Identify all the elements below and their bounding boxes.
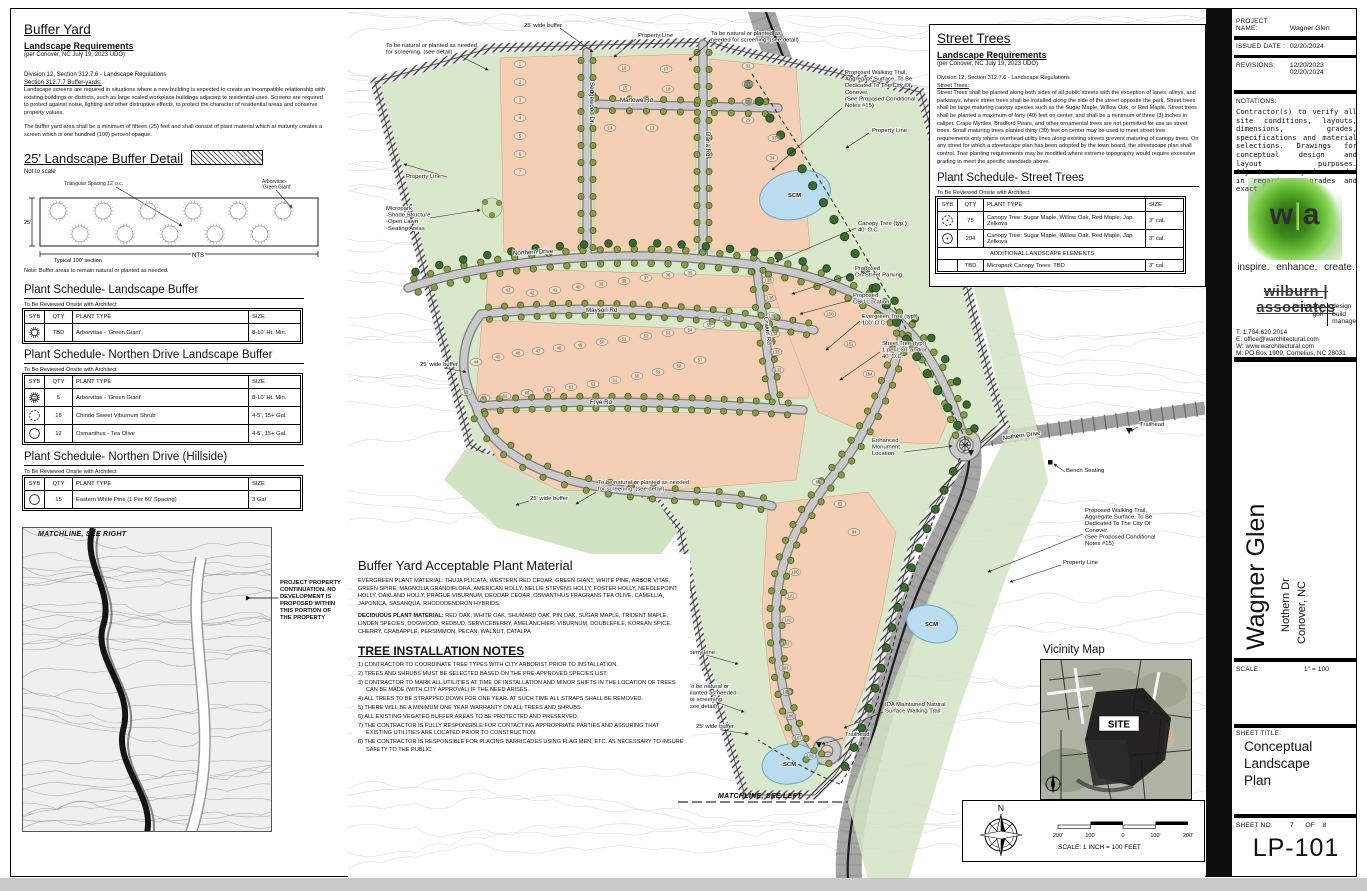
firm-logo-mark: w|a: [1248, 198, 1342, 232]
svg-text:39: 39: [599, 282, 604, 287]
scale-row: SCALE: 1" = 100: [1236, 666, 1356, 673]
svg-text:136: 136: [766, 296, 774, 301]
dim-section: Typical 100' section: [54, 258, 102, 264]
logo-a: a: [1303, 198, 1321, 231]
revisions-label: REVISIONS:: [1236, 62, 1288, 69]
evergreen-paragraph: EVERGREEN PLANT MATERIAL: THUJA PLICATA,…: [358, 578, 684, 608]
svg-text:43: 43: [506, 288, 511, 293]
svg-text:18: 18: [666, 87, 671, 92]
svg-text:36: 36: [666, 273, 671, 278]
svg-text:13: 13: [650, 126, 655, 131]
svg-text:31: 31: [746, 82, 751, 87]
street-label-sedgewood: Sedgewood Dr: [588, 82, 595, 123]
svg-text:80: 80: [816, 480, 821, 485]
evergreen-label: EVERGREEN PLANT MATERIAL:: [358, 578, 443, 584]
schedule-title: Plant Schedule- Northen Drive (Hillside): [24, 451, 304, 466]
north-arrow-icon: N: [980, 803, 1022, 856]
svg-text:52: 52: [644, 334, 649, 339]
svg-text:49: 49: [578, 343, 583, 348]
divider-bar: [1234, 90, 1356, 94]
bottom-band: [0, 878, 1367, 891]
divider-bar: [1234, 55, 1356, 58]
project-continuation-note: PROJECT PROPERTY CONTINUATION. NO DEVELO…: [280, 580, 350, 622]
issued-date-row: ISSUED DATE : 02/20/2024: [1236, 43, 1356, 50]
svg-text:108: 108: [806, 754, 814, 759]
map-annotation: Property Line: [1063, 560, 1099, 566]
schedule-landscape-buffer: Plant Schedule- Landscape Buffer To Be R…: [24, 284, 304, 342]
street-label-frye: Frye Rd: [590, 399, 613, 406]
sheet-title: Conceptual Landscape Plan: [1244, 738, 1312, 789]
street-label-dana: Dana Rd: [704, 132, 711, 157]
sheet-no-label: SHEET NO:: [1236, 822, 1288, 829]
schedule-title: Plant Schedule- Landscape Buffer: [24, 284, 304, 299]
schedule-hillside: Plant Schedule- Northen Drive (Hillside)…: [24, 451, 304, 509]
svg-text:154: 154: [865, 372, 873, 377]
north-letter: N: [998, 803, 1004, 813]
sheet-number-row: SHEET NO: 7 OF 8: [1236, 822, 1356, 829]
svg-text:56: 56: [723, 317, 728, 322]
tree-note-item: 3) CONTRACTOR TO MARK ALL UTILITIES AT T…: [358, 680, 684, 695]
buffer-detail-section: 25' Landscape Buffer Detail Not to scale…: [24, 150, 336, 276]
bench-marker: [1048, 460, 1053, 465]
svg-text:133: 133: [772, 350, 780, 355]
map-annotation: 25' wide buffer: [530, 496, 568, 502]
street-label-marlowe: Marlowe Rd: [620, 97, 654, 104]
svg-text:150: 150: [826, 312, 834, 317]
scale-tick: 200': [1183, 833, 1193, 839]
tree-notes-title: TREE INSTALLATION NOTES: [358, 644, 684, 658]
svg-text:45: 45: [496, 355, 501, 360]
svg-text:67: 67: [482, 396, 487, 401]
sheet-title-label-row: SHEET TITLE:: [1236, 730, 1356, 737]
deciduous-paragraph: DECIDUOUS PLANT MATERIAL: RED OAK, WHITE…: [358, 613, 684, 636]
svg-text:65: 65: [525, 391, 530, 396]
svg-text:40: 40: [576, 285, 581, 290]
site-label: SITE: [1108, 720, 1131, 731]
svg-text:152: 152: [846, 342, 854, 347]
svg-text:106: 106: [786, 714, 794, 719]
review-note: To Be Reviewed Onsite with Architect: [24, 367, 304, 373]
svg-text:42: 42: [530, 291, 535, 296]
plan-sheet: 1234567161715181413323130293334434241403…: [0, 0, 1367, 891]
svg-text:29: 29: [746, 118, 751, 123]
map-annotation: Bench Seating: [1066, 468, 1104, 474]
scale-tick: 100': [1085, 833, 1095, 839]
street-trees-paragraph: Street Trees shall be planted along both…: [937, 90, 1199, 166]
project-note-leader: [246, 590, 280, 606]
section-ref: Street Trees:: [937, 83, 1198, 91]
firm-services: landscape golf design build manage: [1234, 303, 1356, 326]
svg-text:58: 58: [677, 364, 682, 369]
revisions-row: REVISIONS: 12/20/2023 02/20/2024: [1236, 62, 1356, 76]
scale-caption: SCALE: 1 INCH = 100 FEET: [1058, 844, 1141, 851]
tree-note-item: 6) ALL EXISTING VEGATED BUFFER AREAS TO …: [358, 714, 684, 721]
division-ref: Division 12, Section 312.7.6 - Landscape…: [937, 75, 1198, 83]
svg-text:41: 41: [553, 288, 558, 293]
hatch-swatch: [191, 150, 263, 165]
vicinity-map-title: Vicinity Map: [1040, 644, 1108, 656]
svg-text:103: 103: [782, 642, 790, 647]
per-note: (per Conover, NC July 19, 2023 UDO): [937, 60, 1198, 68]
sheet-of-label: OF: [1305, 822, 1314, 829]
svg-text:33: 33: [772, 136, 777, 141]
scm-label: SCM: [783, 762, 796, 768]
review-note: To Be Reviewed Onsite with Architect: [937, 190, 1198, 196]
nts-label: NTS: [192, 253, 204, 259]
divider-bar: [1234, 357, 1356, 362]
svg-text:53: 53: [666, 331, 671, 336]
svg-text:34: 34: [770, 156, 775, 161]
detail-title: 25' Landscape Buffer Detail: [24, 151, 183, 166]
section-ref: Section 312.7.7 Buffer-yards:: [24, 79, 336, 87]
svg-text:62: 62: [591, 382, 596, 387]
svg-text:51: 51: [622, 337, 627, 342]
svg-text:47: 47: [536, 349, 541, 354]
matchline-inset-map: [22, 527, 272, 832]
svg-text:68: 68: [464, 390, 469, 395]
project-name-label: PROJECT NAME:: [1236, 18, 1288, 32]
svg-text:17: 17: [664, 67, 669, 72]
matchline-right-label: MATCHLINE, SEE RIGHT: [38, 531, 126, 538]
svg-text:100: 100: [791, 570, 799, 575]
svg-text:54: 54: [688, 328, 693, 333]
requirements-paragraph: Landscape screens are required in situat…: [24, 87, 326, 117]
issued-date-label: ISSUED DATE :: [1236, 43, 1288, 50]
svg-text:48: 48: [557, 346, 562, 351]
scale-tick: 0: [1121, 833, 1124, 839]
detail-note: Note: Buffer areas to remain natural or …: [24, 268, 336, 276]
svg-text:50: 50: [600, 340, 605, 345]
notes-title: Buffer Yard Acceptable Plant Material: [358, 558, 684, 573]
svg-text:15: 15: [623, 86, 628, 91]
svg-text:44: 44: [474, 360, 479, 365]
schedule-northen-drive-buffer: Plant Schedule- Northen Drive Landscape …: [24, 349, 304, 443]
svg-text:35: 35: [688, 271, 693, 276]
scm-label: SCM: [925, 622, 938, 628]
map-annotation: 25' wide buffer: [696, 724, 734, 730]
map-annotation: 25' wide buffer: [524, 23, 562, 29]
svg-text:63: 63: [569, 385, 574, 390]
schedule-title: Plant Schedule- Street Trees: [937, 172, 1199, 187]
scale-tick: 100': [1150, 833, 1160, 839]
plant-schedule-table: SYBQTYPLANT TYPESIZE15Eastern White Pine…: [24, 477, 304, 509]
svg-text:30: 30: [746, 100, 751, 105]
svg-text:82: 82: [838, 502, 843, 507]
section-title: Street Trees: [937, 31, 1198, 46]
micropark: [482, 198, 502, 218]
section-subtitle: Landscape Requirements: [24, 41, 336, 51]
plant-schedule-table: SYBQTYPLANT TYPESIZE75Canopy Tree: Sugar…: [937, 198, 1198, 272]
svg-text:104: 104: [781, 666, 789, 671]
section-subtitle: Landscape Requirements: [937, 50, 1198, 60]
sheet-title-label: SHEET TITLE:: [1236, 730, 1281, 737]
tree-note-item: 1) CONTRACTOR TO COORDINATE TREE TYPES W…: [358, 662, 684, 669]
svg-text:66: 66: [503, 394, 508, 399]
street-trees-panel: Street Trees Landscape Requirements (per…: [929, 24, 1206, 287]
scale-tick: 200': [1053, 833, 1063, 839]
svg-text:57: 57: [698, 358, 703, 363]
map-annotation: Property Line: [406, 174, 442, 180]
tree-note-item: 7) THE CONTRACTOR IS FULLY RESPONSIBLE F…: [358, 723, 684, 738]
services-right: design build manage: [1328, 303, 1356, 326]
review-note: To Be Reviewed Onsite with Architect: [24, 469, 304, 475]
tree-note-item: 4) ALL TREES TO BE STRAPPED DOWN FOR ONE…: [358, 696, 684, 703]
requirements-paragraph: The buffer yard area shall be a minimum …: [24, 124, 326, 139]
divider-bar: [1234, 36, 1356, 40]
firm-tagline: inspire. enhance. create.: [1234, 262, 1358, 273]
firm-contacts: T: 1.704.620.2014 E: office@warchitectur…: [1236, 329, 1356, 357]
dim-25: 25': [24, 220, 31, 226]
scm-label: SCM: [788, 193, 801, 199]
division-ref: Division 12, Section 312.7.6 - Landscape…: [24, 71, 336, 79]
revisions-values: 12/20/2023 02/20/2024: [1290, 62, 1324, 76]
divider-bar: [1234, 658, 1356, 662]
logo-pipe: |: [1294, 198, 1303, 231]
project-address2: Conover, NC: [1296, 581, 1308, 644]
tree-note-item: 5) THERE WILL BE A MINIMUM ONE YEAR WARR…: [358, 705, 684, 712]
map-annotation: IDA Maintained NaturalSurface Walking Tr…: [885, 702, 946, 715]
review-note: To Be Reviewed Onsite with Architect: [24, 302, 304, 308]
vicinity-map: SITE: [1040, 659, 1192, 800]
north-scale-box: N 200' 100' 0 100' 200' SCALE: 1 INCH =: [962, 800, 1205, 862]
matchline-label: MATCHLINE, SEE LEFT: [718, 793, 802, 800]
notations-label-row: NOTATIONS:: [1236, 98, 1356, 105]
map-annotation: Trailhead: [1140, 422, 1164, 428]
plant-schedule-table: SYBQTYPLANT TYPESIZETBDArborvitae - 'Gre…: [24, 310, 304, 342]
svg-text:64: 64: [547, 388, 552, 393]
map-annotation: Property Line: [638, 33, 674, 39]
svg-text:38: 38: [622, 279, 627, 284]
per-note: (per Conover, NC July 19, 2023 UDO): [24, 51, 336, 59]
map-annotation: 25' wide buffer: [420, 362, 458, 368]
issued-date-value: 02/20/2024: [1290, 43, 1324, 50]
section-title: Buffer Yard: [24, 22, 336, 37]
scale-bar: 200' 100' 0 100' 200' SCALE: 1 INCH = 10…: [1053, 822, 1193, 852]
svg-text:37: 37: [644, 276, 649, 281]
plant-schedule-table: SYBQTYPLANT TYPESIZE5Arborvitae - 'Green…: [24, 375, 304, 443]
not-to-scale: Not to scale: [24, 168, 336, 176]
logo-w: w: [1270, 198, 1294, 231]
detail-callout: Arborvitae-'Green Giant': [262, 179, 291, 191]
sheet-total-value: 8: [1323, 822, 1327, 829]
scale-label: SCALE:: [1236, 666, 1288, 673]
divider-bar: [1234, 170, 1356, 174]
deciduous-label: DECIDUOUS PLANT MATERIAL:: [358, 613, 444, 619]
project-address1: Nothern Dr: [1280, 578, 1292, 632]
map-annotation: Trailhead: [845, 732, 869, 738]
tree-installation-notes: 1) CONTRACTOR TO COORDINATE TREE TYPES W…: [358, 662, 684, 754]
svg-text:60: 60: [635, 374, 640, 379]
services-left: landscape golf: [1293, 303, 1328, 326]
tree-note-item: 2) TREES AND SHRUBS MUST BE SELECTED BAS…: [358, 671, 684, 678]
buffer-yard-section: Buffer Yard Landscape Requirements (per …: [24, 22, 336, 140]
scale-value: 1" = 100: [1304, 666, 1329, 673]
project-title-vertical: Wagner Glen: [1242, 504, 1271, 650]
street-label-mayson: Mayson Rd: [586, 307, 618, 314]
svg-text:61: 61: [613, 378, 618, 383]
project-name-row: PROJECT NAME: Wagner Glen: [1236, 18, 1356, 32]
svg-text:84: 84: [852, 530, 857, 535]
detail-callout: Triangular Spacing 12' o.c.: [64, 181, 123, 187]
map-annotation: Property Line: [872, 128, 908, 134]
divider-bar: [1234, 814, 1356, 818]
buffer-detail-drawing: Triangular Spacing 12' o.c. Arborvitae-'…: [24, 176, 324, 268]
svg-text:55: 55: [707, 323, 712, 328]
tree-note-item: 8) THE CONTRACTOR IS RESPONSIBLE FOR PLA…: [358, 739, 684, 754]
notations-label: NOTATIONS:: [1236, 98, 1277, 105]
sheet-code: LP-101: [1234, 834, 1358, 863]
svg-text:102: 102: [784, 618, 792, 623]
svg-text:138: 138: [764, 278, 772, 283]
schedule-title: Plant Schedule- Northen Drive Landscape …: [24, 349, 304, 364]
svg-text:14: 14: [608, 126, 613, 131]
project-name-value: Wagner Glen: [1290, 25, 1330, 32]
sheet-no-value: 7: [1290, 822, 1294, 829]
titleblock-divider-strip: [1206, 8, 1232, 877]
svg-text:32: 32: [746, 64, 751, 69]
divider-bar: [1234, 724, 1356, 728]
svg-text:101: 101: [787, 594, 795, 599]
svg-text:16: 16: [622, 66, 627, 71]
svg-text:46: 46: [516, 351, 521, 356]
svg-text:107: 107: [794, 736, 802, 741]
svg-text:132: 132: [774, 368, 782, 373]
svg-text:59: 59: [656, 370, 661, 375]
plant-material-notes: Buffer Yard Acceptable Plant Material EV…: [352, 554, 690, 758]
svg-text:105: 105: [782, 690, 790, 695]
